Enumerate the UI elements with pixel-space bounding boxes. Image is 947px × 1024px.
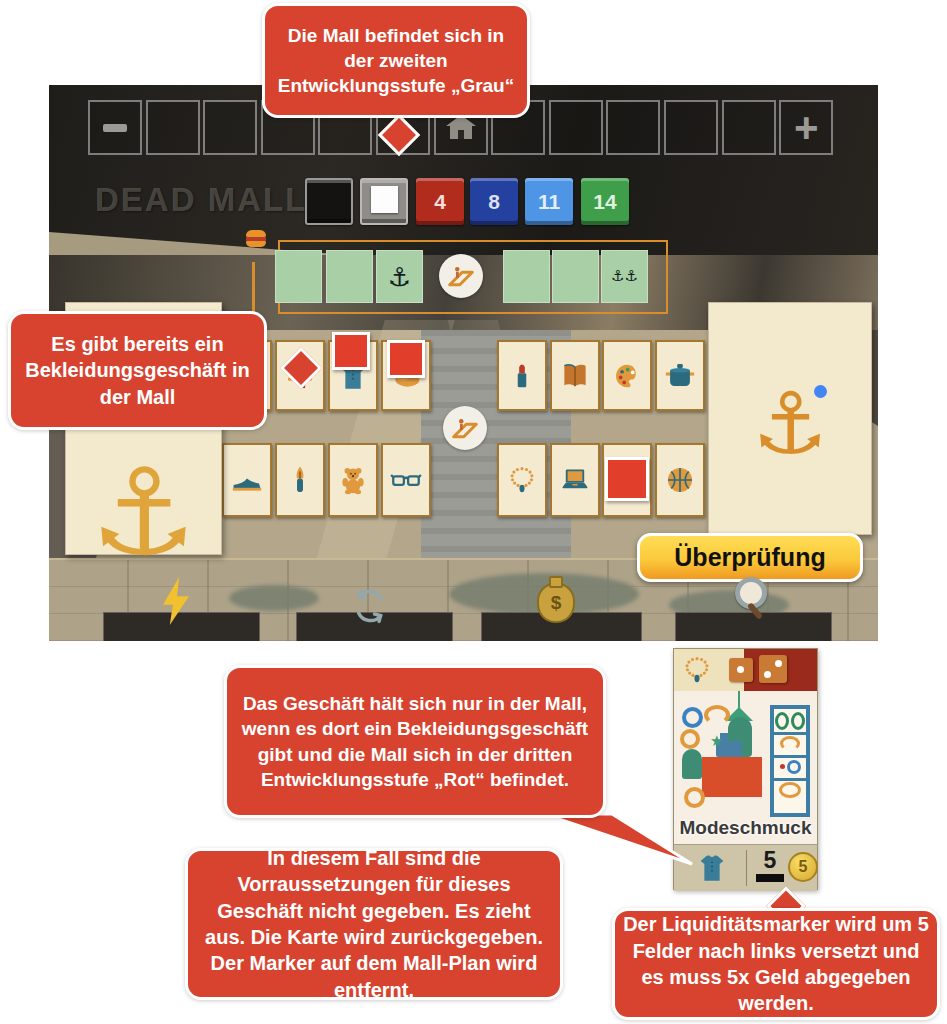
development-tile: 11 — [525, 178, 573, 225]
development-tile — [360, 178, 408, 225]
teddy-bear-icon — [336, 463, 370, 497]
annotation-middle: Das Geschäft hält sich nur in der Mall, … — [224, 665, 606, 818]
mall-plan-square[interactable] — [503, 250, 550, 303]
shop-card[interactable] — [602, 443, 652, 517]
zoom-in-button[interactable]: + — [779, 100, 833, 155]
home-icon — [450, 126, 472, 139]
die-one-icon — [729, 658, 753, 682]
shop-card[interactable] — [381, 443, 431, 517]
liquidity-value: 5 — [756, 847, 784, 874]
magnifier-icon — [731, 575, 765, 623]
anchor-icon: ⚓⚓ — [611, 269, 638, 284]
shop-card[interactable] — [328, 443, 378, 517]
development-tile: 14 — [581, 178, 629, 225]
mall-plan-square[interactable] — [552, 250, 599, 303]
refresh-cycle-icon — [349, 585, 391, 631]
mannequin-bust-small — [682, 749, 702, 779]
shop-card[interactable] — [602, 340, 652, 411]
annotation-bottom-left: In diesem Fall sind die Vorraussetzungen… — [185, 848, 563, 1000]
floor-puddle — [229, 585, 319, 611]
mall-plan-square[interactable]: ⚓ — [376, 250, 423, 303]
burger-icon — [246, 230, 266, 237]
escalator-icon — [439, 254, 483, 298]
zoom-out-button[interactable] — [88, 100, 142, 155]
coin-icon: 5 — [788, 852, 818, 882]
shoe-icon — [230, 463, 264, 497]
toolbar-square[interactable] — [549, 100, 603, 155]
die-two-icon — [759, 655, 787, 683]
red-marker-cube[interactable] — [387, 340, 425, 378]
escalator-column — [421, 330, 571, 558]
shop-counter — [702, 757, 762, 797]
mall-plan-square[interactable]: ⚓⚓ — [601, 250, 648, 303]
necklace-icon — [505, 463, 539, 497]
money-bag-icon: $ — [537, 583, 575, 623]
book-icon — [558, 359, 592, 393]
card-header — [674, 649, 817, 691]
red-marker-cube[interactable] — [605, 457, 649, 501]
liquidity-bar — [756, 874, 784, 882]
development-tile: 4 — [416, 178, 464, 225]
toolbar-square[interactable] — [203, 100, 257, 155]
annotation-bottom-right: Der Liquiditätsmarker wird um 5 Felder n… — [612, 908, 940, 1020]
anchor-store-card-right[interactable]: ⚓ — [708, 302, 872, 535]
glasses-icon — [389, 463, 423, 497]
annotation-left: Es gibt bereits ein Bekleidungsgeschäft … — [8, 311, 267, 430]
laptop-icon — [558, 463, 592, 497]
necklace-icon — [680, 653, 714, 687]
toolbar-square[interactable] — [664, 100, 718, 155]
development-tile — [305, 178, 353, 225]
shop-card[interactable] — [497, 340, 547, 411]
shop-card[interactable] — [328, 340, 378, 411]
toolbar-square[interactable] — [146, 100, 200, 155]
blue-ring-icon — [682, 707, 703, 728]
shop-card[interactable] — [275, 443, 325, 517]
pen-icon — [283, 463, 317, 497]
pot-icon — [663, 359, 697, 393]
shop-card[interactable] — [550, 340, 600, 411]
ring-icon — [684, 787, 705, 808]
anchor-icon: ⚓ — [388, 264, 411, 290]
mall-plan-square[interactable] — [275, 250, 322, 303]
star-icon: ★ — [710, 733, 723, 748]
palette-icon — [610, 359, 644, 393]
red-marker-cube[interactable] — [332, 332, 370, 370]
necklace-arc-icon — [704, 705, 730, 725]
shop-card[interactable] — [550, 443, 600, 517]
annotation-top: Die Mall befindet sich in der zweiten En… — [262, 3, 530, 118]
orange-ring-icon — [680, 729, 700, 749]
toolbar-square[interactable] — [722, 100, 776, 155]
basketball-icon — [663, 463, 697, 497]
action-panel-lightning[interactable] — [103, 612, 260, 641]
escalator-icon — [443, 406, 487, 450]
shop-card[interactable] — [655, 340, 705, 411]
mall-plan-square[interactable] — [326, 250, 373, 303]
stage-marker-cube — [371, 186, 398, 213]
shop-card[interactable] — [655, 443, 705, 517]
minus-icon — [103, 124, 127, 132]
lipstick-icon — [505, 359, 539, 393]
development-tile: 8 — [470, 178, 518, 225]
anchor-icon: ⚓ — [90, 453, 198, 573]
jewelry-shelf — [770, 705, 810, 817]
shop-card[interactable] — [497, 443, 547, 517]
shop-card[interactable] — [222, 443, 272, 517]
blue-marker-dot — [814, 385, 827, 398]
shop-card[interactable] — [381, 340, 431, 411]
toolbar-square[interactable] — [606, 100, 660, 155]
footer-divider — [746, 850, 747, 886]
